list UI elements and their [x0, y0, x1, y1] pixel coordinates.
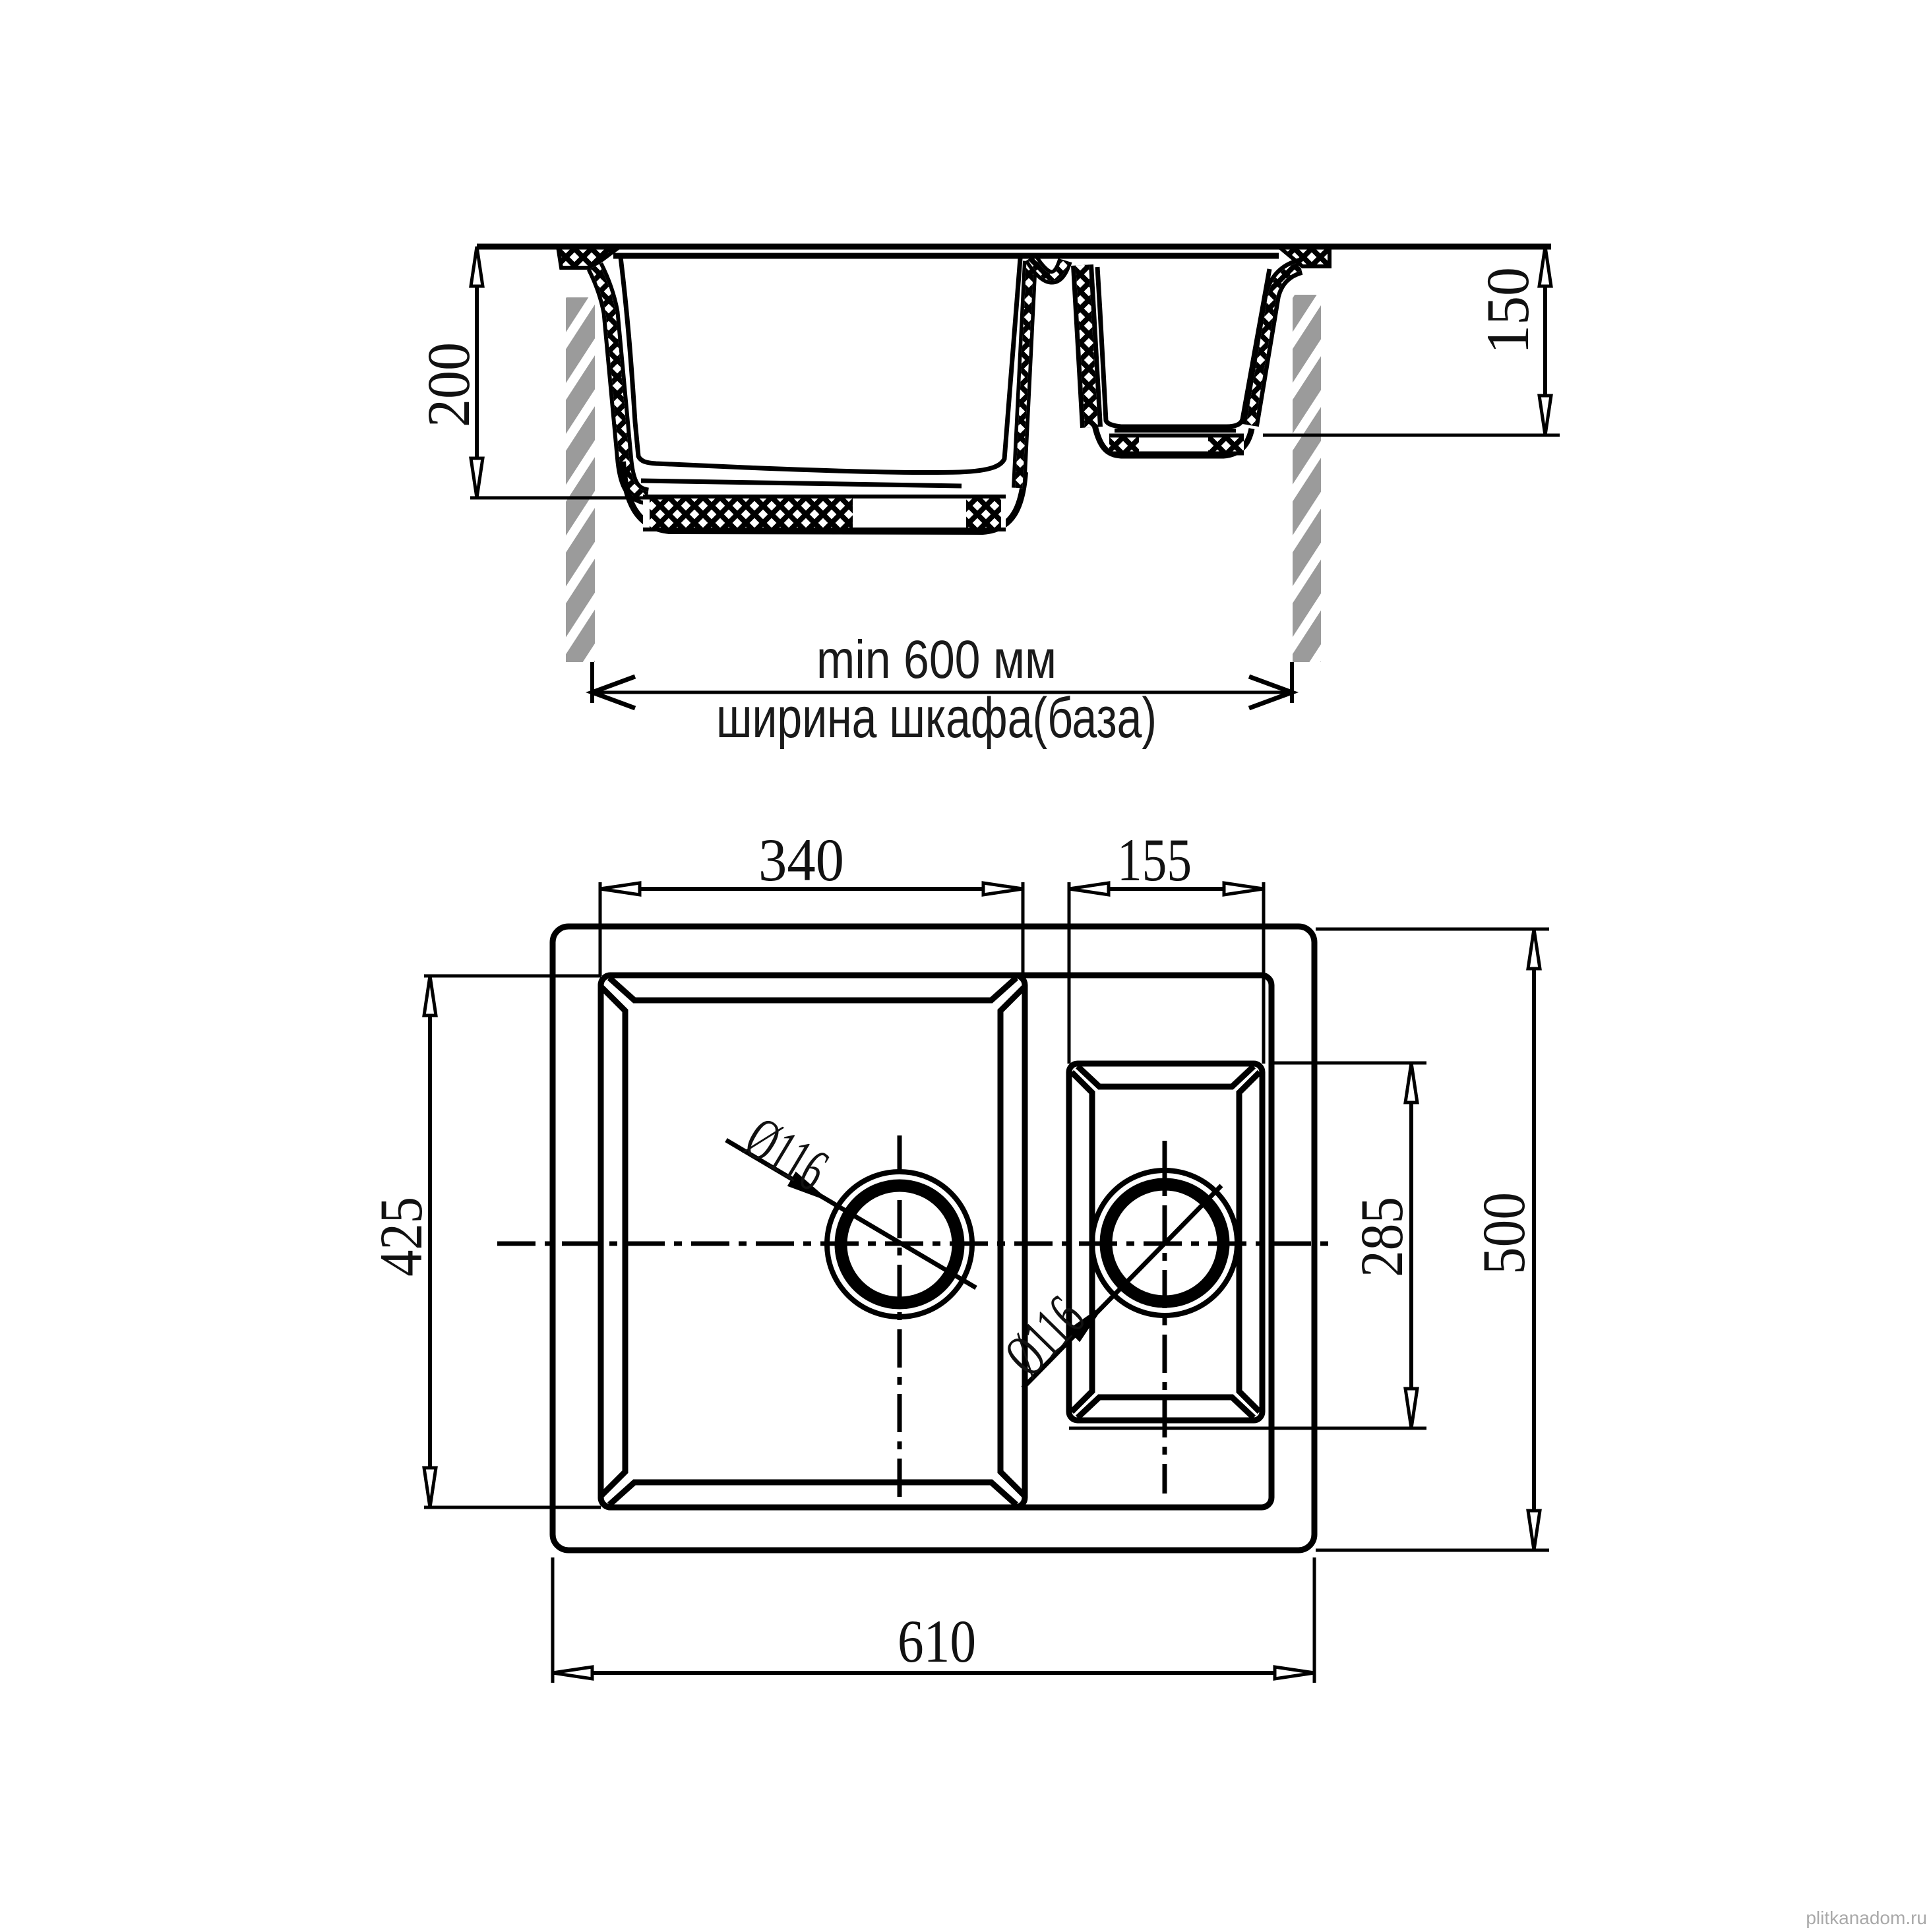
svg-text:155: 155 — [1117, 826, 1192, 893]
svg-text:ширина шкафа(база): ширина шкафа(база) — [716, 686, 1157, 750]
svg-text:425: 425 — [367, 1197, 435, 1277]
svg-text:200: 200 — [415, 342, 482, 427]
svg-text:500: 500 — [1470, 1192, 1537, 1275]
svg-text:min 600 мм: min 600 мм — [816, 630, 1056, 690]
svg-text:610: 610 — [898, 1608, 976, 1675]
svg-text:plitkanadom.ru: plitkanadom.ru — [1806, 1908, 1927, 1928]
svg-text:150: 150 — [1474, 267, 1541, 354]
svg-text:285: 285 — [1348, 1197, 1415, 1277]
svg-text:340: 340 — [758, 826, 844, 893]
